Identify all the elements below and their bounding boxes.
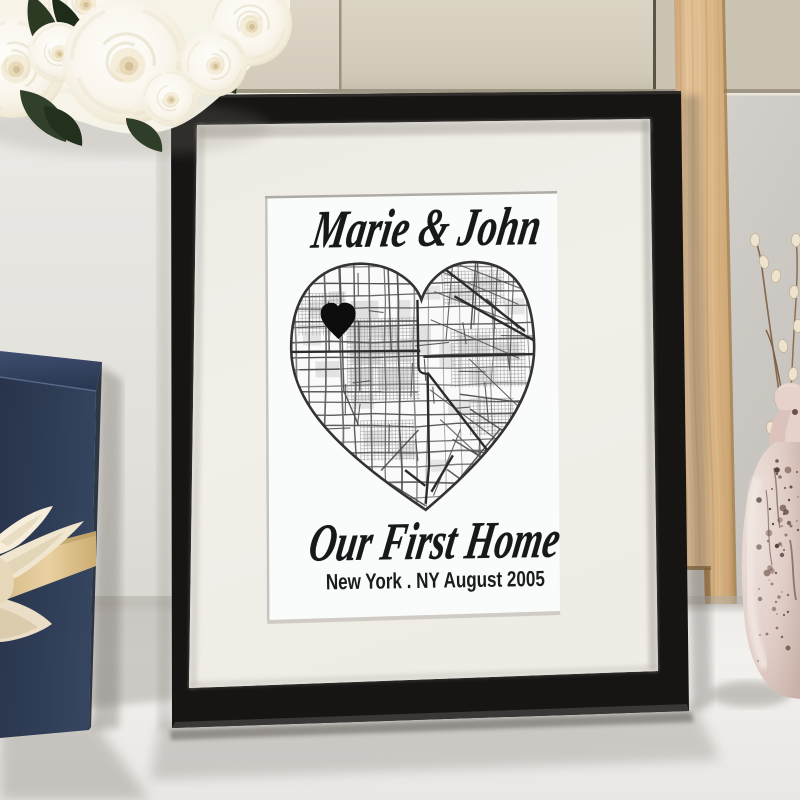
svg-text:New York . NY August 2005: New York . NY August 2005	[326, 566, 545, 594]
svg-text:Our First Home: Our First Home	[305, 509, 565, 573]
svg-text:Marie & John: Marie & John	[307, 196, 545, 259]
